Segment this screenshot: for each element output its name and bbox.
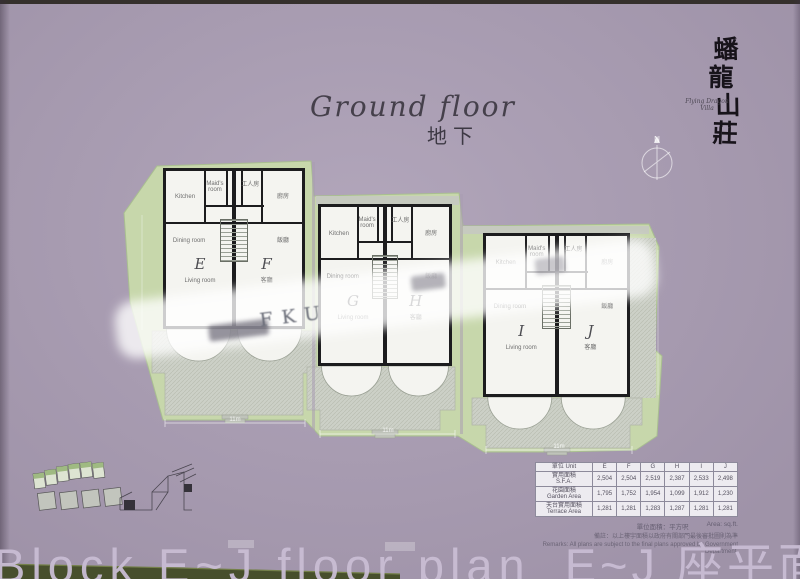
interior-wall (204, 205, 234, 207)
svg-text:11m: 11m (382, 428, 393, 434)
table-row-sfa: 實用面積 S.F.A. 2,504 2,504 2,519 2,387 2,53… (536, 472, 738, 487)
area-table: 單位 Unit E F G H I J 實用面積 S.F.A. 2,504 2,… (535, 462, 738, 517)
col-j: J (713, 463, 737, 472)
room-label-dining: Dining room (173, 238, 205, 244)
cell: 1,795 (593, 487, 617, 502)
room-label-maid: Maid's room (356, 217, 378, 229)
svg-text:11m: 11m (229, 417, 240, 423)
cell: 2,498 (713, 472, 737, 487)
cell: 1,230 (713, 487, 737, 502)
row-label-sfa: 實用面積 S.F.A. (536, 472, 593, 487)
row-label-terrace: 天台實用面積 Terrace Area (536, 502, 593, 517)
cell: 1,283 (641, 502, 665, 517)
room-label-living: Living room (506, 345, 537, 351)
room-label-dining-zh: 飯廳 (601, 304, 613, 310)
interior-wall (385, 241, 413, 243)
unit-letter-j: J (587, 322, 593, 340)
svg-text:11m: 11m (553, 444, 564, 450)
cell: 2,504 (617, 472, 641, 487)
interior-wall (357, 207, 359, 258)
cell: 1,954 (641, 487, 665, 502)
interior-wall (204, 171, 206, 222)
cell: 2,533 (689, 472, 713, 487)
row-label-garden: 花園面積 Garden Area (536, 487, 593, 502)
table-row-terrace: 天台實用面積 Terrace Area 1,281 1,281 1,283 1,… (536, 502, 738, 517)
cell: 2,387 (665, 472, 689, 487)
table-row-garden: 花園面積 Garden Area 1,795 1,752 1,954 1,099… (536, 487, 738, 502)
interior-wall (241, 171, 243, 205)
interior-wall (357, 241, 385, 243)
table-header-unit: 單位 Unit (536, 463, 593, 472)
room-label-living: Living room (184, 278, 215, 284)
room-label-maid-zh: 工人房 (391, 218, 409, 224)
unit-letter-f: F (261, 255, 271, 273)
footer-title-english: Block E~J floor plan (0, 539, 531, 579)
footer-title-chinese: E~J 座平面圖 (565, 539, 800, 579)
col-f: F (617, 463, 641, 472)
cell: 1,281 (617, 502, 641, 517)
col-g: G (641, 463, 665, 472)
room-label-living-zh: 客廳 (584, 345, 596, 351)
cell: 1,099 (665, 487, 689, 502)
unit-letter-i: I (518, 322, 524, 340)
cell: 2,519 (641, 472, 665, 487)
col-e: E (593, 463, 617, 472)
cell: 1,281 (713, 502, 737, 517)
cell: 1,281 (593, 502, 617, 517)
col-h: H (665, 463, 689, 472)
room-label-kitchen: Kitchen (175, 194, 195, 200)
interior-wall (261, 171, 263, 222)
unit-letter-e: E (195, 255, 206, 273)
cell: 1,281 (689, 502, 713, 517)
room-label-kitchen-zh: 廚房 (425, 231, 437, 237)
col-i: I (689, 463, 713, 472)
cell: 2,504 (593, 472, 617, 487)
room-label-kitchen: Kitchen (329, 231, 349, 237)
compass-north-label: N (654, 135, 660, 144)
interior-wall (234, 205, 264, 207)
table-header-row: 單位 Unit E F G H I J (536, 463, 738, 472)
cell: 1,287 (665, 502, 689, 517)
interior-wall (411, 207, 413, 258)
interior-wall (391, 207, 393, 241)
room-label-maid-zh: 工人房 (241, 182, 259, 188)
room-label-kitchen-zh: 廚房 (277, 194, 289, 200)
interior-wall (226, 171, 228, 205)
key-plan-thumbnail (32, 459, 122, 515)
scanned-floorplan-page: Ground floor 地下 蟠 龍 山 莊 Flying Dragon Vi… (0, 0, 800, 579)
staircase (220, 219, 247, 262)
section-thumbnail (120, 464, 196, 510)
cell: 1,752 (617, 487, 641, 502)
room-label-maid: Maid's room (204, 181, 226, 193)
cell: 1,912 (689, 487, 713, 502)
room-label-dining-zh: 飯廳 (277, 238, 289, 244)
footer-block-title: Block E~J floor planE~J 座平面圖 (0, 527, 800, 579)
